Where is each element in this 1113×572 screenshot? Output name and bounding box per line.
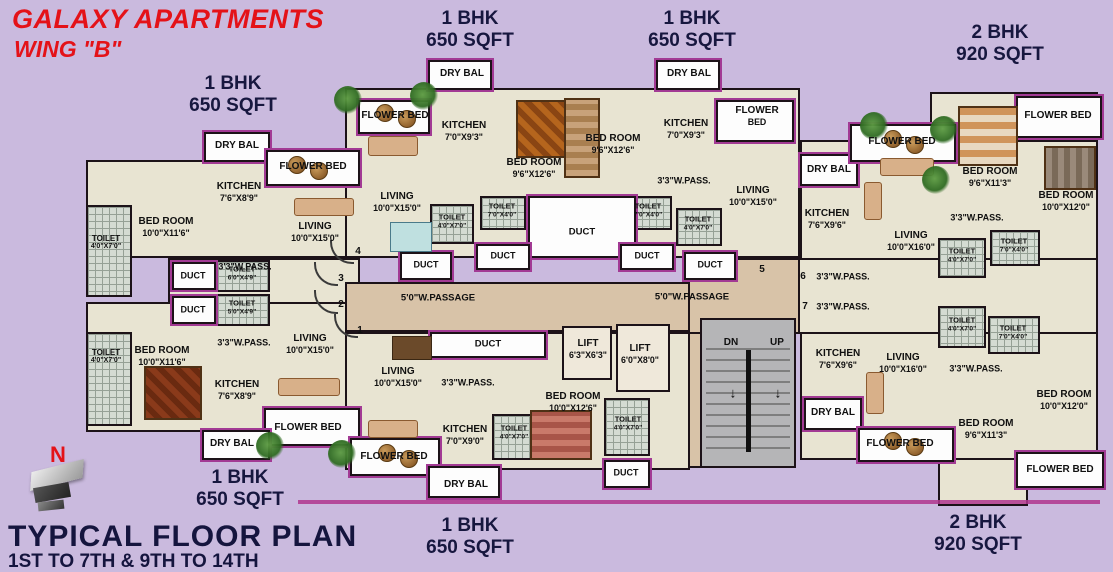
label-flower-bed-tl: FLOWER BED [279,161,346,173]
label-kitchen-ct-text: KITCHEN [442,120,486,132]
label-lift-2: LIFT6'0"X8'0" [621,343,659,365]
stairs-arrow-dn-icon: ↓ [730,385,737,402]
bed-furniture-rt1 [958,106,1018,166]
sofa-furniture-tl [294,198,354,216]
unit-label-1bhk-bottom-left-type: 1 BHK [196,467,284,489]
label-toilet-ct-1-dims: 4'0"X7'0" [438,223,466,231]
plant-icon [328,440,356,468]
unit-label-1bhk-bottom-center: 1 BHK650 SQFT [426,515,514,559]
label-bedroom-rt1: BED ROOM9'6"X11'3" [963,166,1018,188]
label-living-crt-text: LIVING [729,185,777,197]
plant-icon [410,82,438,110]
label-toilet-crt-1: TOILET7'0"X4'0" [634,203,662,220]
label-toilet-rt-1-dims: 4'0"X7'0" [948,257,976,265]
unit-label-2bhk-top-right-type: 2 BHK [956,22,1044,44]
label-toilet-bc-text: TOILET [500,425,528,434]
label-duct-center-2: DUCT [635,251,660,262]
label-duct-left-2: DUCT [181,305,206,316]
label-living-tl-dims: 10'0"X15'0" [291,233,339,243]
label-flower-bed-rb2-text: FLOWER BED [1026,464,1093,476]
label-flower-bed-rt2-text: FLOWER BED [1024,110,1091,122]
label-toilet-bl-dims: 4'0"X7'0" [91,358,121,366]
label-toilet-rb-2: TOILET7'0"X4'0" [999,325,1027,342]
label-toilet-stair: TOILET4'0"X7'0" [614,416,642,433]
label-lift-2-dims: 6'0"X8'0" [621,355,659,365]
dining-table-bc [392,336,432,360]
label-toilet-ct-2: TOILET7'0"X4'0" [488,203,516,220]
label-living-ct-text: LIVING [373,191,421,203]
plant-icon [922,166,950,194]
label-pass-rb-text: 3'3"W.PASS. [949,364,1002,375]
label-kitchen-rb-dims: 7'6"X9'6" [816,360,860,370]
label-passage-east-text: 5'0"W.PASSAGE [655,291,729,302]
label-bedroom-rb2-text: BED ROOM [1037,389,1092,401]
label-toilet-left-1-dims: 6'0"X4'9" [228,275,256,283]
flat-number-7: 7 [802,301,808,313]
unit-label-1bhk-top-center-type: 1 BHK [426,8,514,30]
label-toilet-rt-2-text: TOILET [1000,238,1028,247]
label-bedroom-rt2-text: BED ROOM [1039,190,1094,202]
plant-icon [256,432,284,460]
label-stairs-dn-text: DN [724,337,738,349]
label-kitchen-rb-text: KITCHEN [816,348,860,360]
label-kitchen-bl: KITCHEN7'6"X8'9" [215,379,259,401]
label-dry-bal-rt: DRY BAL [807,164,851,176]
label-toilet-tl-dims: 4'0"X7'0" [91,244,121,252]
label-living-bc-text: LIVING [374,366,422,378]
label-flower-bed-tl-text: FLOWER BED [279,161,346,173]
label-living-ct: LIVING10'0"X15'0" [373,191,421,213]
unit-label-2bhk-bottom-right-type: 2 BHK [934,512,1022,534]
label-toilet-rb-2-text: TOILET [999,325,1027,334]
label-dry-bal-ct: DRY BAL [440,68,484,80]
label-toilet-tl-text: TOILET [91,234,121,243]
label-lift-1-dims: 6'3"X6'3" [569,350,607,360]
unit-label-1bhk-top-right-area: 650 SQFT [648,30,736,52]
label-stairs-up: UP [770,337,784,349]
label-bedroom-ct-text: BED ROOM [507,157,562,169]
label-bedroom-rb2-dims: 10'0"X12'0" [1037,401,1092,411]
label-duct-center-main: DUCT [569,226,595,237]
sofa-furniture-rt-b [864,182,882,220]
label-toilet-ct-2-dims: 7'0"X4'0" [488,212,516,220]
label-bedroom-rb1-dims: 9'6"X11'3" [959,430,1014,440]
label-bedroom-rt1-text: BED ROOM [963,166,1018,178]
north-arrow-icon [22,464,86,516]
unit-label-1bhk-bottom-left-area: 650 SQFT [196,489,284,511]
label-toilet-crt-1-dims: 7'0"X4'0" [634,212,662,220]
label-bedroom-tl-text: BED ROOM [139,216,194,228]
label-toilet-bc-dims: 4'0"X7'0" [500,434,528,442]
label-flower-bed-bc: FLOWER BED [360,451,427,463]
dining-table-ct [390,222,432,252]
label-duct-bc: DUCT [475,338,501,349]
label-living-rt: LIVING10'0"X16'0" [887,230,935,252]
label-living-tl: LIVING10'0"X15'0" [291,221,339,243]
unit-label-1bhk-top-center: 1 BHK650 SQFT [426,8,514,52]
flat-number-4-text: 4 [355,246,361,258]
label-kitchen-crt: KITCHEN7'0"X9'3" [664,118,708,140]
label-flower-bed-rt2: FLOWER BED [1024,110,1091,122]
label-living-bl-text: LIVING [286,333,334,345]
unit-label-1bhk-top-right: 1 BHK650 SQFT [648,8,736,52]
label-bedroom-rb1-text: BED ROOM [959,418,1014,430]
unit-label-2bhk-bottom-right-area: 920 SQFT [934,534,1022,556]
label-flower-bed-rt: FLOWER BED [868,136,935,148]
label-duct-center-4: DUCT [698,260,723,271]
label-living-bl-dims: 10'0"X15'0" [286,345,334,355]
label-toilet-bc: TOILET4'0"X7'0" [500,425,528,442]
label-duct-stair-text: DUCT [614,468,639,479]
label-passage-west-text: 5'0"W.PASSAGE [401,292,475,303]
flat-number-3: 3 [338,273,344,285]
label-dry-bal-ct-text: DRY BAL [440,68,484,80]
label-living-rb: LIVING10'0"X16'0" [879,352,927,374]
label-pass-rt: 3'3"W.PASS. [950,213,1003,224]
bed-furniture-bc [530,410,592,460]
label-stairs-up-text: UP [770,337,784,349]
label-toilet-left-2: TOILET5'0"X4'9" [228,300,256,317]
label-kitchen-rt-text: KITCHEN [805,208,849,220]
label-flower-bed-crt-text: FLOWER [735,105,778,117]
stair-divider [746,350,751,452]
room-block-rb-bedroom-ext [938,458,1028,506]
label-dry-bal-rb: DRY BAL [811,407,855,419]
north-arrow-base [38,500,65,512]
label-duct-left-2-text: DUCT [181,305,206,316]
label-toilet-stair-text: TOILET [614,416,642,425]
label-bedroom-rb2: BED ROOM10'0"X12'0" [1037,389,1092,411]
label-toilet-rt-2: TOILET7'0"X4'0" [1000,238,1028,255]
bed-furniture-bl [144,366,202,420]
label-dry-bal-rb-text: DRY BAL [811,407,855,419]
label-living-bc-dims: 10'0"X15'0" [374,378,422,388]
label-pass-rt-text: 3'3"W.PASS. [950,213,1003,224]
flat-number-6: 6 [800,271,806,283]
toilet-bottom-left-wing [86,332,132,426]
label-toilet-rb-2-dims: 7'0"X4'0" [999,334,1027,342]
label-lift-1-text: LIFT [569,338,607,350]
label-pass-rb: 3'3"W.PASS. [949,364,1002,375]
label-bedroom-crt: BED ROOM9'6"X12'6" [586,133,641,155]
label-lift-2-text: LIFT [621,343,659,355]
flat-number-1-text: 1 [357,325,363,337]
label-kitchen-bl-text: KITCHEN [215,379,259,391]
flat-number-3-text: 3 [338,273,344,285]
label-bedroom-bl-text: BED ROOM [135,345,190,357]
label-flower-bed-rb1: FLOWER BED [866,438,933,450]
label-duct-center-1: DUCT [491,251,516,262]
label-kitchen-rb: KITCHEN7'6"X9'6" [816,348,860,370]
label-bedroom-rb1: BED ROOM9'6"X11'3" [959,418,1014,440]
label-toilet-left-1: TOILET6'0"X4'9" [228,266,256,283]
label-living-bl: LIVING10'0"X15'0" [286,333,334,355]
label-toilet-rb-1: TOILET4'0"X7'0" [948,317,976,334]
label-flower-bed-rb1-text: FLOWER BED [866,438,933,450]
label-dry-bal-tl-text: DRY BAL [215,140,259,152]
unit-label-1bhk-top-left-type: 1 BHK [189,73,277,95]
bed-furniture-rt2 [1044,146,1096,190]
label-duct-center-4-text: DUCT [698,260,723,271]
label-dry-bal-crt-text: DRY BAL [667,68,711,80]
label-pass-crt-text: 3'3"W.PASS. [657,176,710,187]
label-flower-bed-bc-text: FLOWER BED [360,451,427,463]
flat-number-2: 2 [338,299,344,311]
unit-label-2bhk-top-right-area: 920 SQFT [956,44,1044,66]
flat-number-4: 4 [355,246,361,258]
unit-label-2bhk-top-right: 2 BHK920 SQFT [956,22,1044,66]
label-kitchen-tl: KITCHEN7'6"X8'9" [217,181,261,203]
label-duct-stair: DUCT [614,468,639,479]
label-kitchen-tl-text: KITCHEN [217,181,261,193]
label-bedroom-rt2: BED ROOM10'0"X12'0" [1039,190,1094,212]
label-dry-bal-bc-text: DRY BAL [444,479,488,491]
label-toilet-rt-1: TOILET4'0"X7'0" [948,248,976,265]
label-kitchen-rt: KITCHEN7'6"X9'6" [805,208,849,230]
label-pass-6: 3'3"W.PASS. [816,272,869,283]
plan-floors-range: 1ST TO 7TH & 9TH TO 14TH [8,551,259,572]
wing-label: WING "B" [14,36,121,63]
label-toilet-tl: TOILET4'0"X7'0" [91,234,121,252]
label-bedroom-bc-dims: 10'0"X12'6" [546,403,601,413]
label-toilet-ct-1: TOILET4'0"X7'0" [438,214,466,231]
label-toilet-rb-1-text: TOILET [948,317,976,326]
flat-number-2-text: 2 [338,299,344,311]
label-duct-center-3-text: DUCT [414,260,439,271]
unit-label-1bhk-bottom-center-area: 650 SQFT [426,537,514,559]
label-kitchen-crt-dims: 7'0"X9'3" [664,130,708,140]
label-kitchen-rt-dims: 7'6"X9'6" [805,220,849,230]
label-bedroom-bc-text: BED ROOM [546,391,601,403]
label-dry-bal-bl: DRY BAL [210,438,254,450]
label-bedroom-crt-text: BED ROOM [586,133,641,145]
sofa-furniture-rb [866,372,884,414]
label-duct-left-1-text: DUCT [181,271,206,282]
label-duct-bc-text: DUCT [475,338,501,349]
label-kitchen-bc-text: KITCHEN [443,424,487,436]
label-toilet-rb-1-dims: 4'0"X7'0" [948,326,976,334]
label-flower-bed-bl: FLOWER BED [274,422,341,434]
unit-label-1bhk-bottom-center-type: 1 BHK [426,515,514,537]
label-flower-bed-bl-text: FLOWER BED [274,422,341,434]
label-kitchen-bc-dims: 7'0"X9'0" [443,436,487,446]
unit-label-1bhk-bottom-left: 1 BHK650 SQFT [196,467,284,511]
label-stairs-dn: DN [724,337,738,349]
label-dry-bal-rt-text: DRY BAL [807,164,851,176]
label-dry-bal-tl: DRY BAL [215,140,259,152]
label-passage-east: 5'0"W.PASSAGE [655,291,729,302]
unit-label-1bhk-top-left: 1 BHK650 SQFT [189,73,277,117]
label-kitchen-crt-text: KITCHEN [664,118,708,130]
flat-number-7-text: 7 [802,301,808,313]
label-pass-bl-text: 3'3"W.PASS. [217,338,270,349]
sofa-furniture-ct [368,136,418,156]
unit-label-1bhk-top-left-area: 650 SQFT [189,95,277,117]
label-living-rt-dims: 10'0"X16'0" [887,242,935,252]
label-pass-bc: 3'3"W.PASS. [441,378,494,389]
label-bedroom-bl: BED ROOM10'0"X11'6" [135,345,190,367]
label-living-crt: LIVING10'0"X15'0" [729,185,777,207]
label-bedroom-ct: BED ROOM9'6"X12'6" [507,157,562,179]
label-kitchen-tl-dims: 7'6"X8'9" [217,193,261,203]
label-living-rt-text: LIVING [887,230,935,242]
sofa-furniture-bl [278,378,340,396]
label-toilet-left-1-text: TOILET [228,266,256,275]
unit-label-1bhk-top-right-type: 1 BHK [648,8,736,30]
label-toilet-ct-2-text: TOILET [488,203,516,212]
label-pass-7-text: 3'3"W.PASS. [816,302,869,313]
label-bedroom-rt2-dims: 10'0"X12'0" [1039,202,1094,212]
label-pass-7: 3'3"W.PASS. [816,302,869,313]
label-dry-bal-crt: DRY BAL [667,68,711,80]
label-lift-1: LIFT6'3"X6'3" [569,338,607,360]
label-toilet-rt-1-text: TOILET [948,248,976,257]
label-toilet-stair-dims: 4'0"X7'0" [614,425,642,433]
label-living-ct-dims: 10'0"X15'0" [373,203,421,213]
plan-title: TYPICAL FLOOR PLAN [8,520,357,554]
label-living-rb-dims: 10'0"X16'0" [879,364,927,374]
label-bedroom-rt1-dims: 9'6"X11'3" [963,178,1018,188]
stairs-arrow-up-icon: ↓ [775,385,782,402]
label-bedroom-ct-dims: 9'6"X12'6" [507,169,562,179]
label-pass-bl: 3'3"W.PASS. [217,338,270,349]
label-toilet-crt-2: TOILET4'0"X7'0" [684,216,712,233]
label-dry-bal-bc: DRY BAL [444,479,488,491]
label-living-rb-text: LIVING [879,352,927,364]
label-flower-bed-rt-text: FLOWER BED [868,136,935,148]
boundary-line [298,500,1100,504]
label-toilet-bl-text: TOILET [91,348,121,357]
flat-number-6-text: 6 [800,271,806,283]
floor-plan-canvas: GALAXY APARTMENTS WING "B" N TYPICAL FLO… [0,0,1113,572]
label-duct-left-1: DUCT [181,271,206,282]
label-living-tl-text: LIVING [291,221,339,233]
sofa-furniture-bc [368,420,418,438]
label-toilet-bl: TOILET4'0"X7'0" [91,348,121,366]
label-pass-crt: 3'3"W.PASS. [657,176,710,187]
label-flower-bed-ct: FLOWER BED [361,110,428,122]
label-pass-bc-text: 3'3"W.PASS. [441,378,494,389]
label-passage-west: 5'0"W.PASSAGE [401,292,475,303]
label-bedroom-bl-dims: 10'0"X11'6" [135,357,190,367]
label-toilet-crt-1-text: TOILET [634,203,662,212]
label-flower-bed-crt: FLOWERBED [735,105,778,127]
page-title: GALAXY APARTMENTS [12,4,324,35]
label-pass-6-text: 3'3"W.PASS. [816,272,869,283]
label-kitchen-bc: KITCHEN7'0"X9'0" [443,424,487,446]
label-kitchen-ct-dims: 7'0"X9'3" [442,132,486,142]
unit-label-2bhk-bottom-right: 2 BHK920 SQFT [934,512,1022,556]
stairs-arrow-up-icon-text: ↓ [775,385,782,402]
label-dry-bal-bl-text: DRY BAL [210,438,254,450]
label-bedroom-tl-dims: 10'0"X11'6" [139,228,194,238]
label-bedroom-tl: BED ROOM10'0"X11'6" [139,216,194,238]
flat-number-1: 1 [357,325,363,337]
label-duct-center-3: DUCT [414,260,439,271]
label-toilet-rt-2-dims: 7'0"X4'0" [1000,247,1028,255]
flat-number-5: 5 [759,264,765,276]
label-living-bc: LIVING10'0"X15'0" [374,366,422,388]
label-toilet-left-2-text: TOILET [228,300,256,309]
unit-label-1bhk-top-center-area: 650 SQFT [426,30,514,52]
label-toilet-crt-2-text: TOILET [684,216,712,225]
label-toilet-left-2-dims: 5'0"X4'9" [228,309,256,317]
label-flower-bed-rb2: FLOWER BED [1026,464,1093,476]
label-kitchen-bl-dims: 7'6"X8'9" [215,391,259,401]
stairs-arrow-dn-icon-text: ↓ [730,385,737,402]
label-living-crt-dims: 10'0"X15'0" [729,197,777,207]
label-bedroom-bc: BED ROOM10'0"X12'6" [546,391,601,413]
flat-number-5-text: 5 [759,264,765,276]
label-bedroom-crt-dims: 9'6"X12'6" [586,145,641,155]
label-toilet-ct-1-text: TOILET [438,214,466,223]
plant-icon [334,86,362,114]
label-kitchen-ct: KITCHEN7'0"X9'3" [442,120,486,142]
label-duct-center-1-text: DUCT [491,251,516,262]
label-toilet-crt-2-dims: 4'0"X7'0" [684,225,712,233]
label-flower-bed-crt-dims: BED [735,117,778,127]
label-duct-center-main-text: DUCT [569,226,595,237]
label-flower-bed-ct-text: FLOWER BED [361,110,428,122]
label-duct-center-2-text: DUCT [635,251,660,262]
